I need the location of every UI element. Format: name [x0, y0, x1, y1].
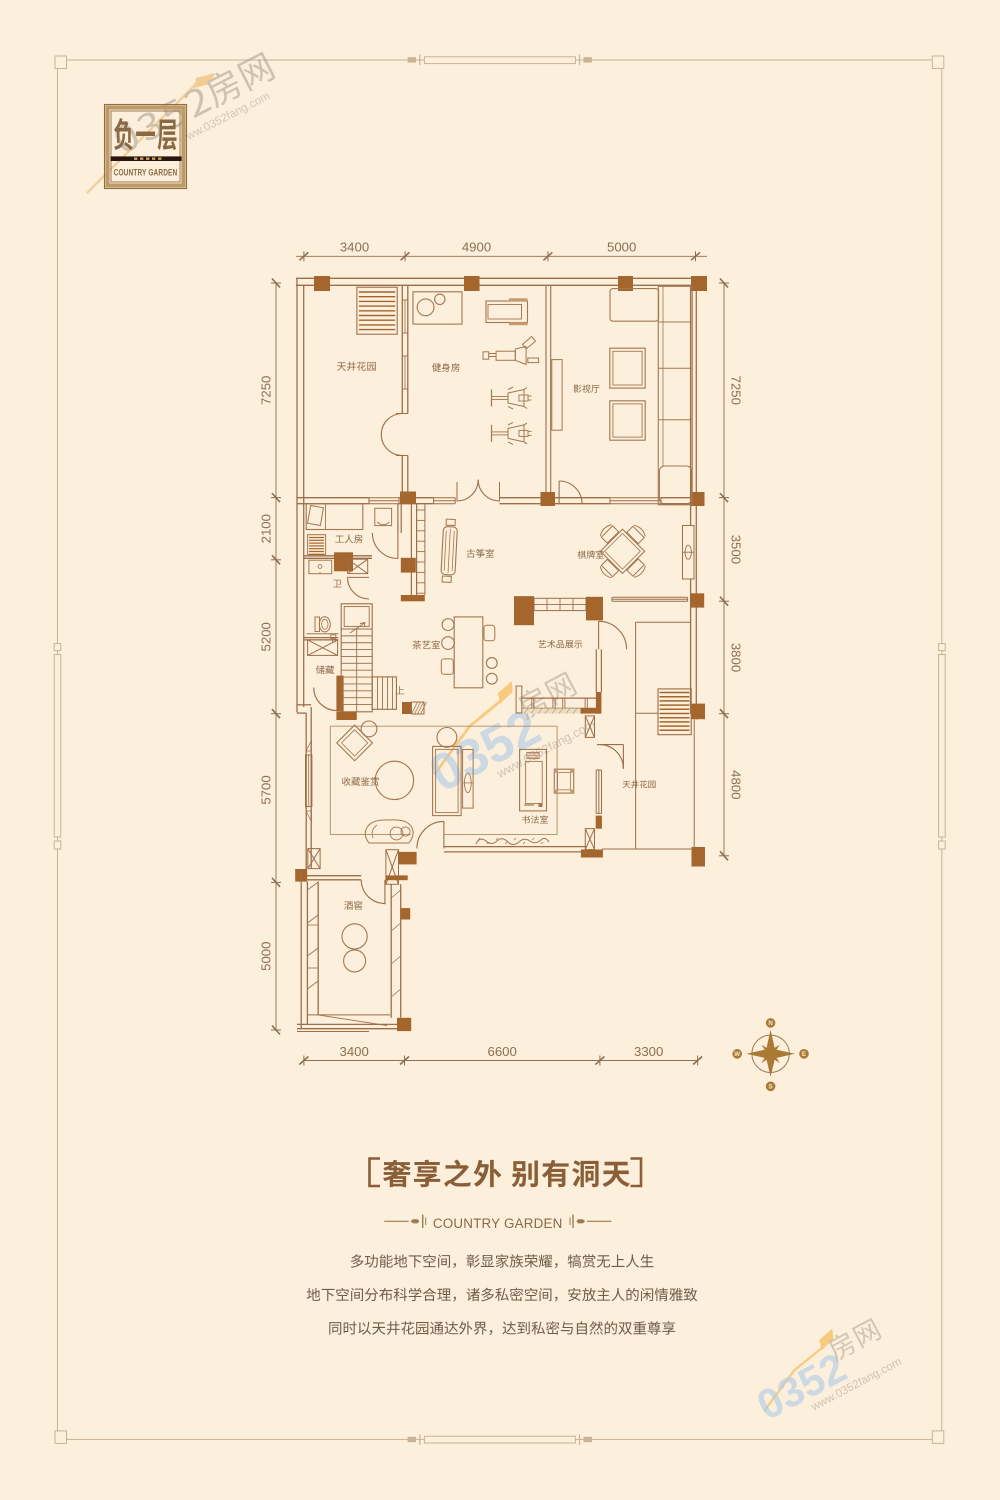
- svg-text:3400: 3400: [340, 1044, 369, 1059]
- svg-text:N: N: [768, 1020, 773, 1027]
- svg-text:3500: 3500: [729, 535, 744, 564]
- svg-text:3300: 3300: [634, 1044, 663, 1059]
- svg-text:COUNTRY GARDEN: COUNTRY GARDEN: [433, 1216, 563, 1231]
- svg-text:6600: 6600: [488, 1044, 517, 1059]
- svg-text:W: W: [734, 1051, 740, 1058]
- svg-text:5200: 5200: [259, 622, 274, 651]
- svg-text:3400: 3400: [340, 240, 369, 255]
- svg-text:5000: 5000: [259, 942, 274, 971]
- svg-text:3800: 3800: [729, 643, 744, 672]
- svg-text:7250: 7250: [259, 376, 274, 405]
- svg-text:5700: 5700: [259, 775, 274, 804]
- svg-text:2100: 2100: [259, 514, 274, 543]
- svg-text:4900: 4900: [462, 240, 491, 255]
- svg-text:COUNTRY GARDEN: COUNTRY GARDEN: [114, 167, 178, 178]
- svg-text:7250: 7250: [729, 376, 744, 405]
- svg-text:S: S: [769, 1084, 773, 1091]
- svg-text:5000: 5000: [607, 240, 636, 255]
- svg-text:E: E: [802, 1051, 806, 1058]
- svg-text:4800: 4800: [729, 770, 744, 799]
